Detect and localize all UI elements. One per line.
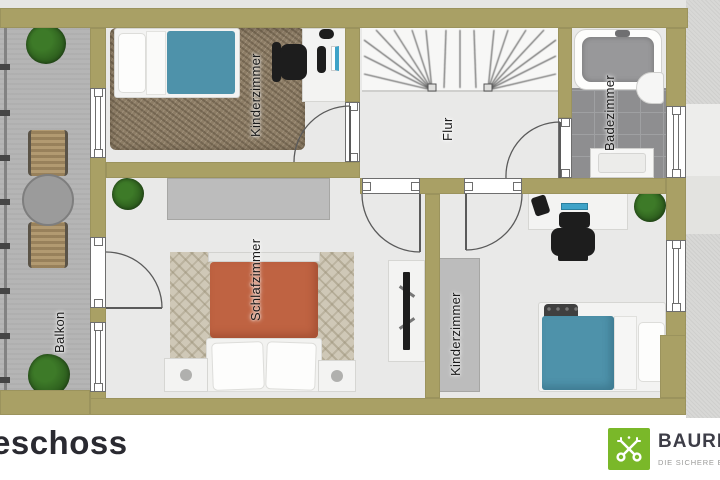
chair-base (558, 250, 588, 261)
wall (90, 398, 686, 415)
toilet (636, 72, 664, 104)
room-label-balcony: Balkon (52, 300, 67, 364)
brand-name: BAURI (658, 431, 720, 453)
bed-blanket-teal (542, 316, 614, 390)
nightstand-knob (331, 370, 343, 382)
plant-icon (26, 24, 66, 64)
door-arc (104, 242, 166, 310)
balcony-table (22, 174, 74, 226)
door-opening (464, 178, 522, 194)
room-label-hallway: Flur (440, 108, 455, 150)
plant-icon (634, 190, 666, 222)
winder-stairs (362, 28, 558, 92)
railing-post (0, 64, 10, 70)
window (90, 322, 106, 392)
railing-post (0, 155, 10, 161)
monitor (317, 46, 326, 73)
room-label-kids-room-top: Kinderzimmer (248, 45, 263, 145)
wall (0, 390, 90, 415)
brand-logo: BAURI DIE SICHERE EI (608, 428, 720, 470)
outside-tile (686, 176, 720, 234)
door-arc (360, 194, 422, 256)
railing-post (0, 199, 10, 205)
wall (660, 335, 686, 398)
railing-post (0, 110, 10, 116)
wardrobe (167, 178, 330, 220)
bed-pillow (118, 33, 146, 93)
balcony-chair (28, 130, 68, 176)
door-arc (464, 194, 524, 254)
railing-post (0, 243, 10, 249)
railing-post (0, 288, 10, 294)
railing-post (0, 333, 10, 339)
double-bed-blanket-orange (210, 262, 318, 338)
railing-post (0, 377, 10, 383)
background-strip (0, 0, 688, 8)
plant-icon (112, 178, 144, 210)
tv (403, 272, 410, 350)
door-arc (504, 118, 562, 180)
faucet-icon (615, 30, 630, 37)
bed-pillow (265, 341, 317, 391)
room-label-bedroom: Schlafzimmer (248, 224, 263, 336)
pc-screen (331, 46, 339, 71)
floor-plan: Balkon Kinderzimmer Flur Badezimmer Schl… (0, 0, 720, 418)
room-label-kids-room-bottom: Kinderzimmer (448, 278, 463, 390)
office-chair (280, 44, 307, 80)
brand-tagline: DIE SICHERE EI (658, 458, 720, 467)
keyboard (561, 203, 588, 210)
window (666, 240, 686, 312)
outside-tile (686, 104, 720, 176)
wall (425, 194, 440, 398)
headphones-icon (319, 29, 334, 39)
wall (558, 28, 572, 118)
footer: eschoss BAURI DIE SICHERE (0, 418, 720, 480)
wall (345, 28, 360, 102)
bed-sheet (146, 31, 166, 95)
crossed-keys-icon (608, 428, 650, 470)
door-arc (292, 102, 352, 164)
floor-title: eschoss (0, 424, 128, 462)
room-label-bathroom: Badezimmer (602, 58, 617, 168)
wall (106, 162, 360, 178)
bed-headboard (208, 252, 320, 262)
wall (0, 8, 688, 28)
nightstand-knob (180, 369, 192, 381)
monitor (559, 212, 590, 228)
floor-plan-page: Balkon Kinderzimmer Flur Badezimmer Schl… (0, 0, 720, 480)
window (90, 88, 106, 158)
balcony-chair (28, 222, 68, 268)
bed-pillow (211, 341, 265, 391)
door-opening (362, 178, 420, 194)
bed-blanket-teal (167, 31, 235, 94)
bed-sheet (614, 316, 637, 390)
window (666, 106, 686, 178)
